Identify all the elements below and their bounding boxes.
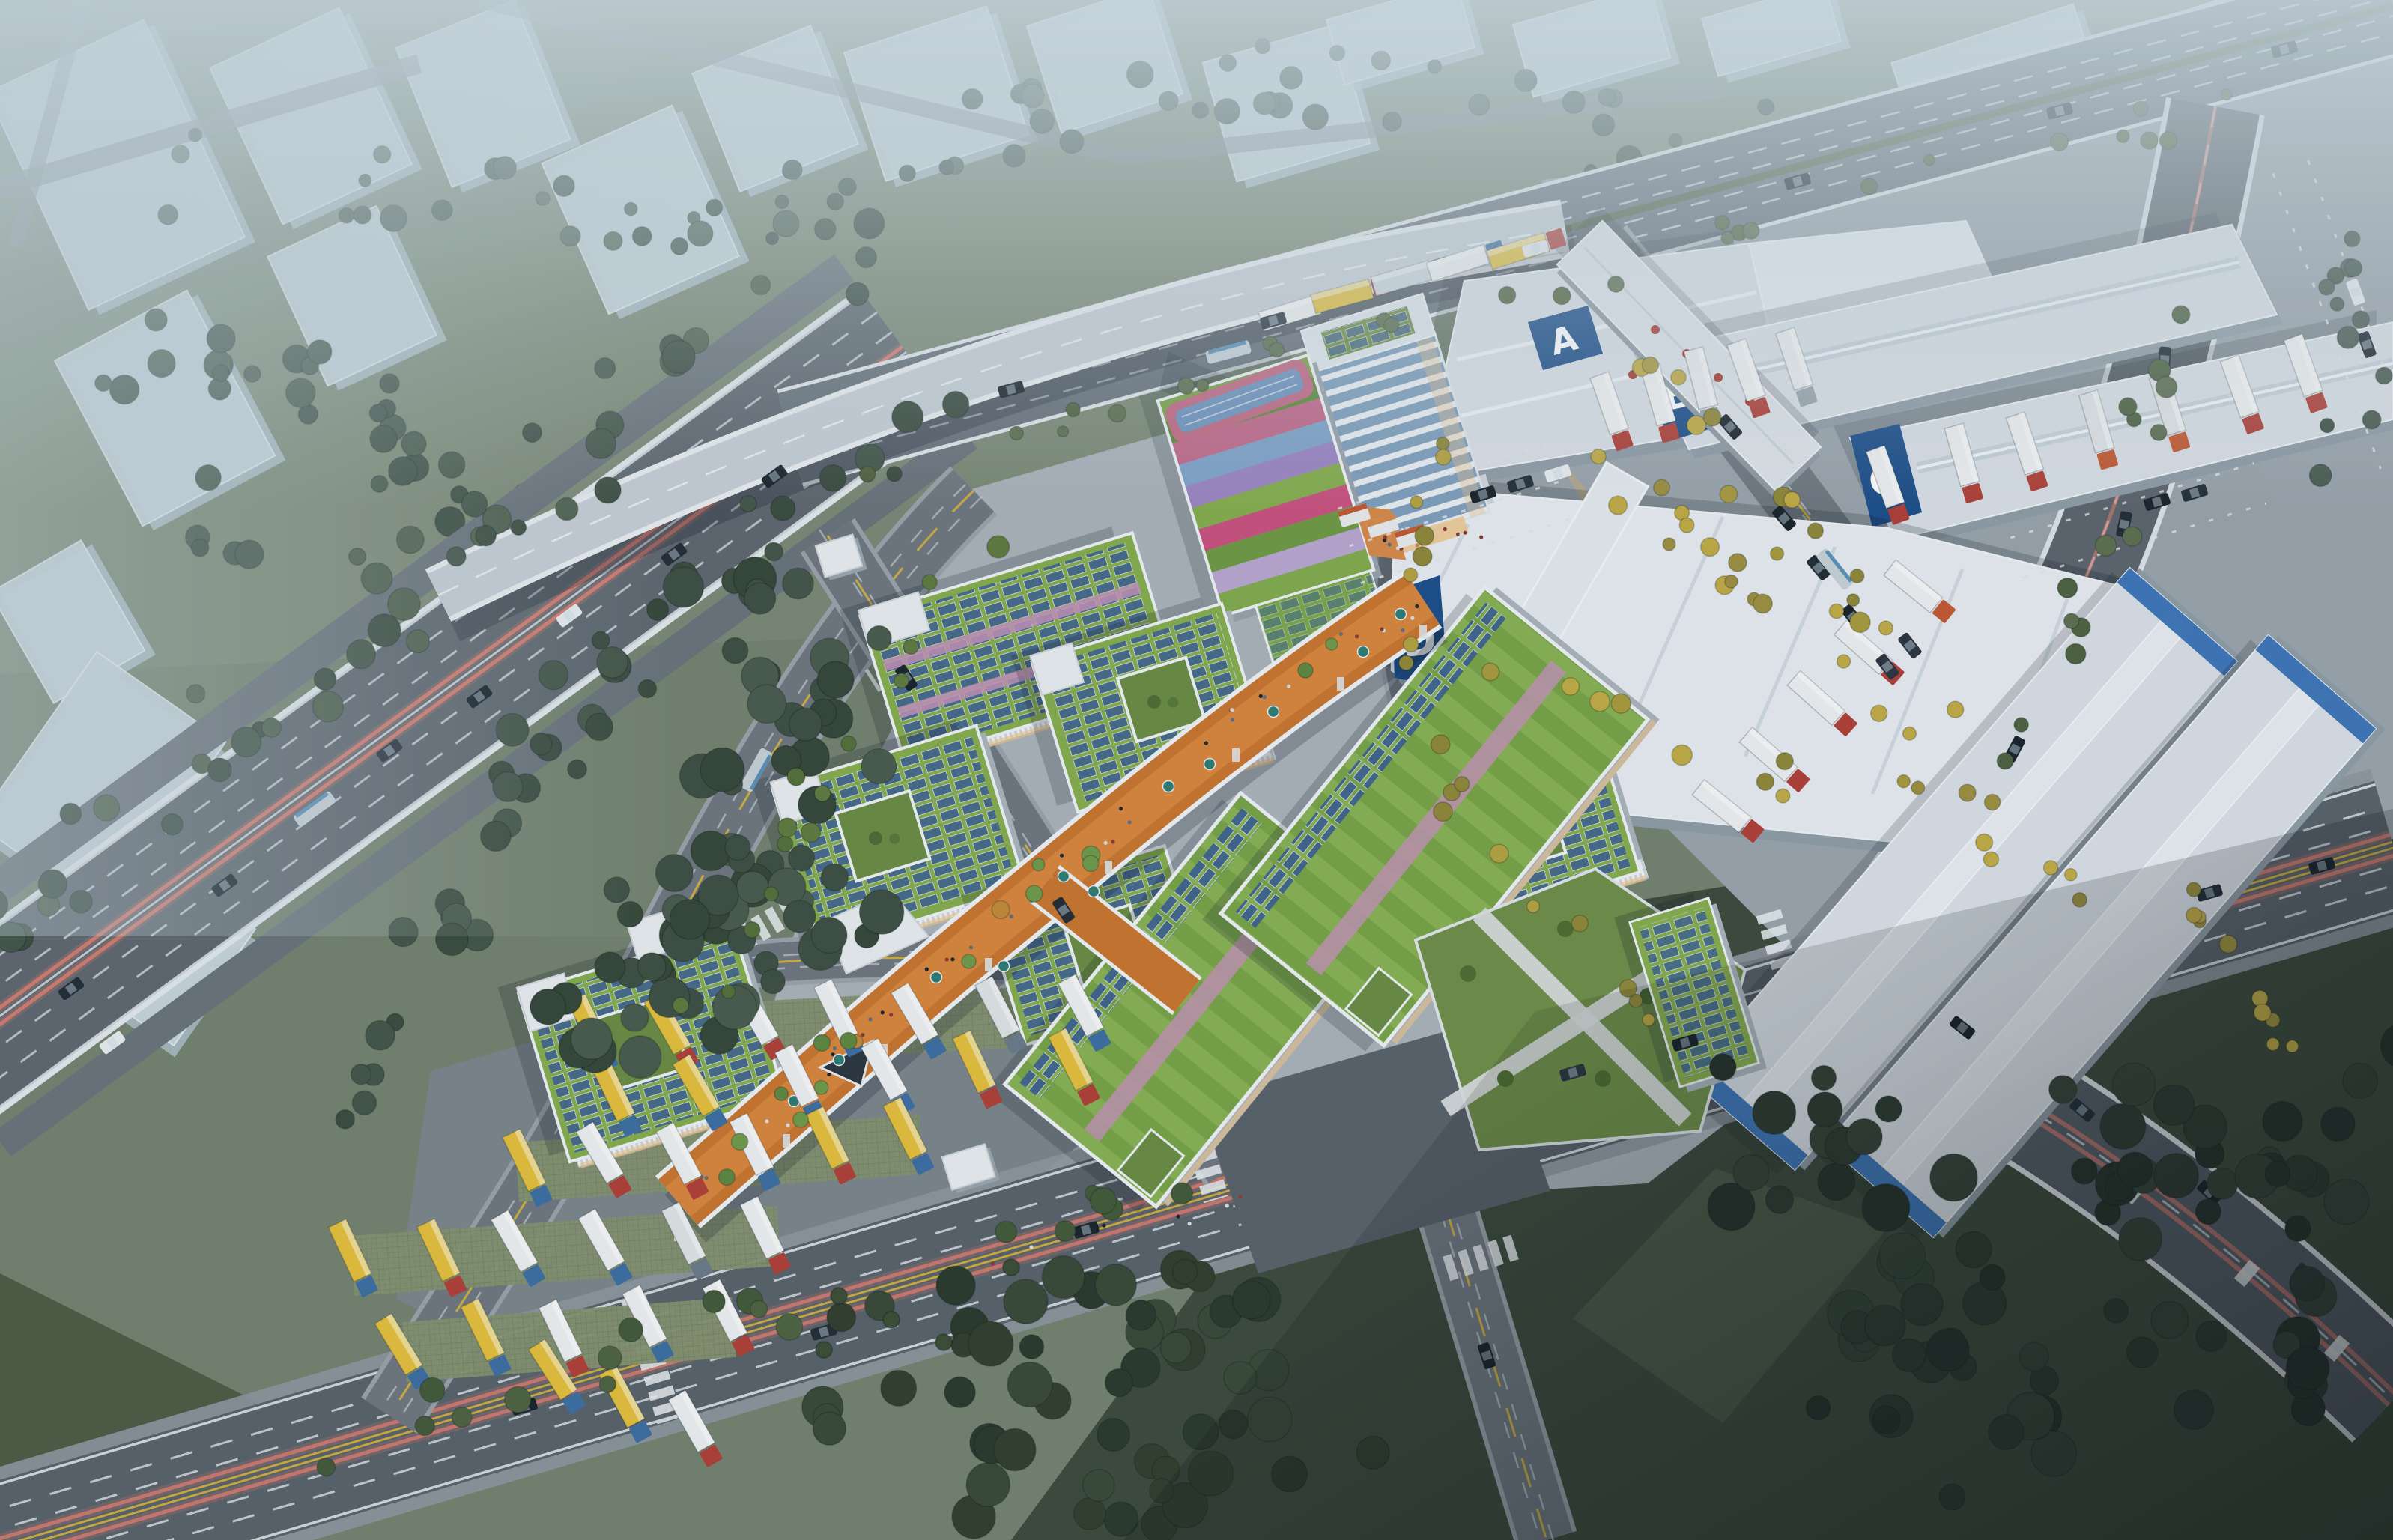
aerial-park-rendering: ABCD	[0, 0, 2393, 1540]
layer-atmosphere	[0, 0, 2393, 1540]
rendering-stage: ABCD	[0, 0, 2393, 1540]
cool-grade-tint	[0, 0, 2393, 1540]
